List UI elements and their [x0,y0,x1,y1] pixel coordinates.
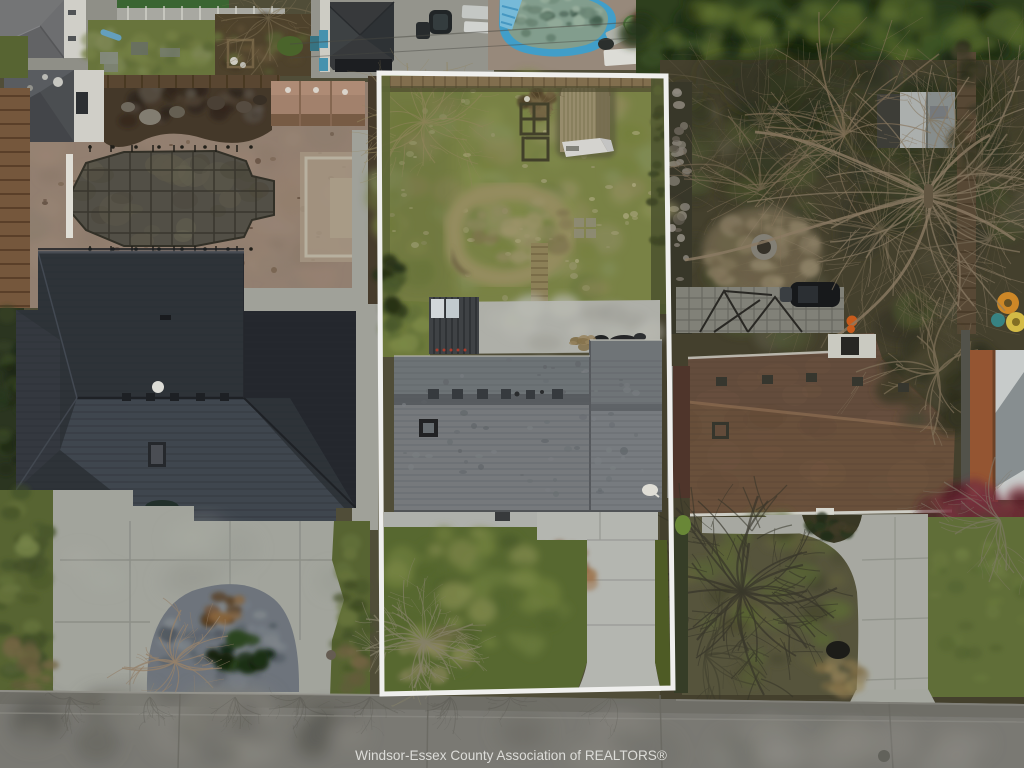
svg-text:Windsor-Essex County Associati: Windsor-Essex County Association of REAL… [355,748,667,763]
